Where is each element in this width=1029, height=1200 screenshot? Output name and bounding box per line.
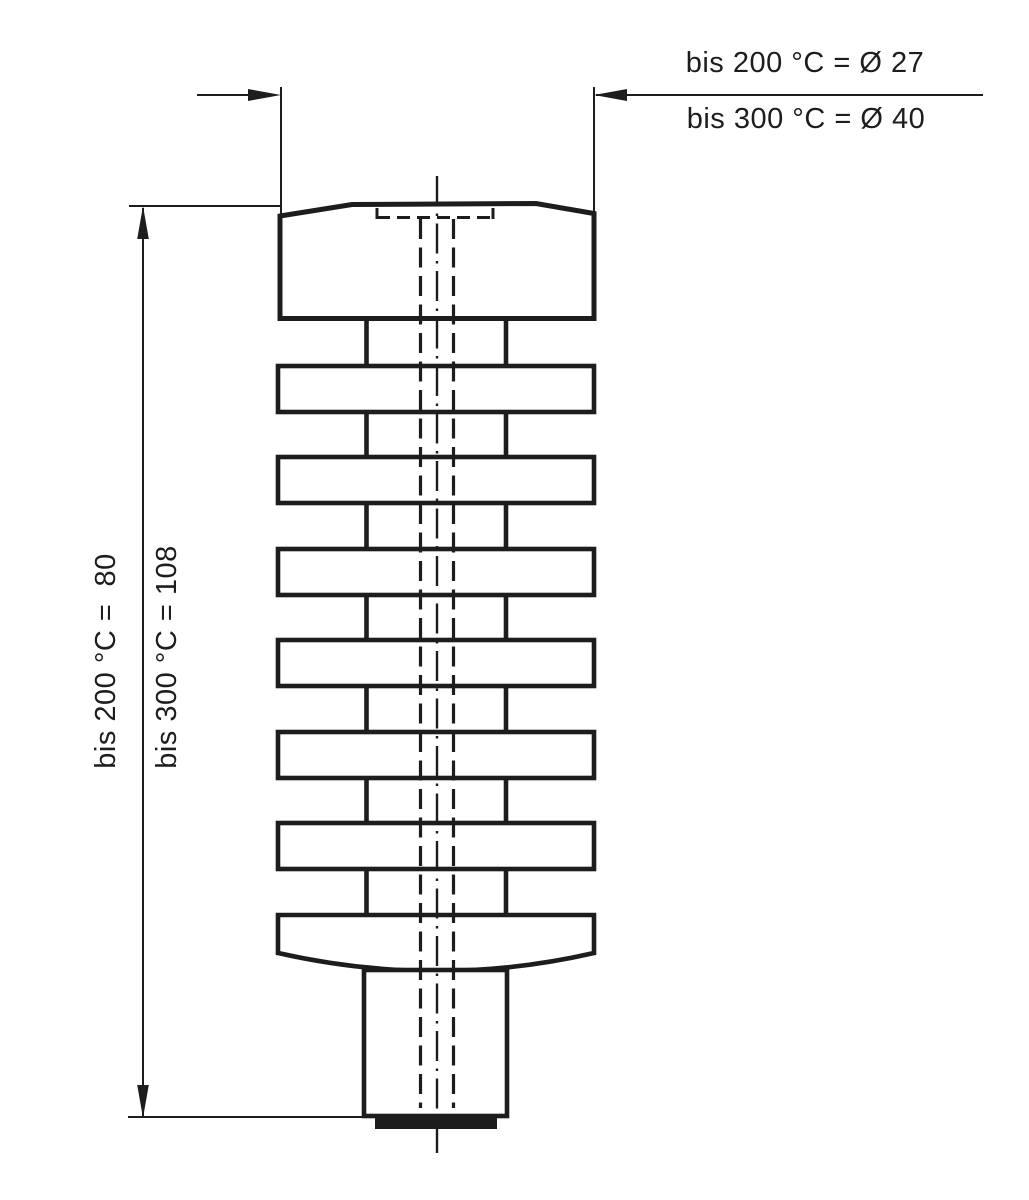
label-height-200: bis 200 °C = 80 [86,451,126,871]
technical-drawing-canvas: bis 200 °C = Ø 27 bis 300 °C = Ø 40 bis … [0,0,1029,1200]
label-height-300: bis 300 °C = 108 [147,447,187,867]
arrowhead-up-icon [137,206,149,239]
arrowhead-down-icon [137,1085,149,1118]
arrowhead-right-icon [248,89,281,101]
label-diameter-200: bis 200 °C = Ø 27 [605,44,1005,82]
label-diameter-300: bis 300 °C = Ø 40 [606,100,1006,138]
component-outline [278,176,594,1153]
bottom-cylinder [364,970,507,1116]
